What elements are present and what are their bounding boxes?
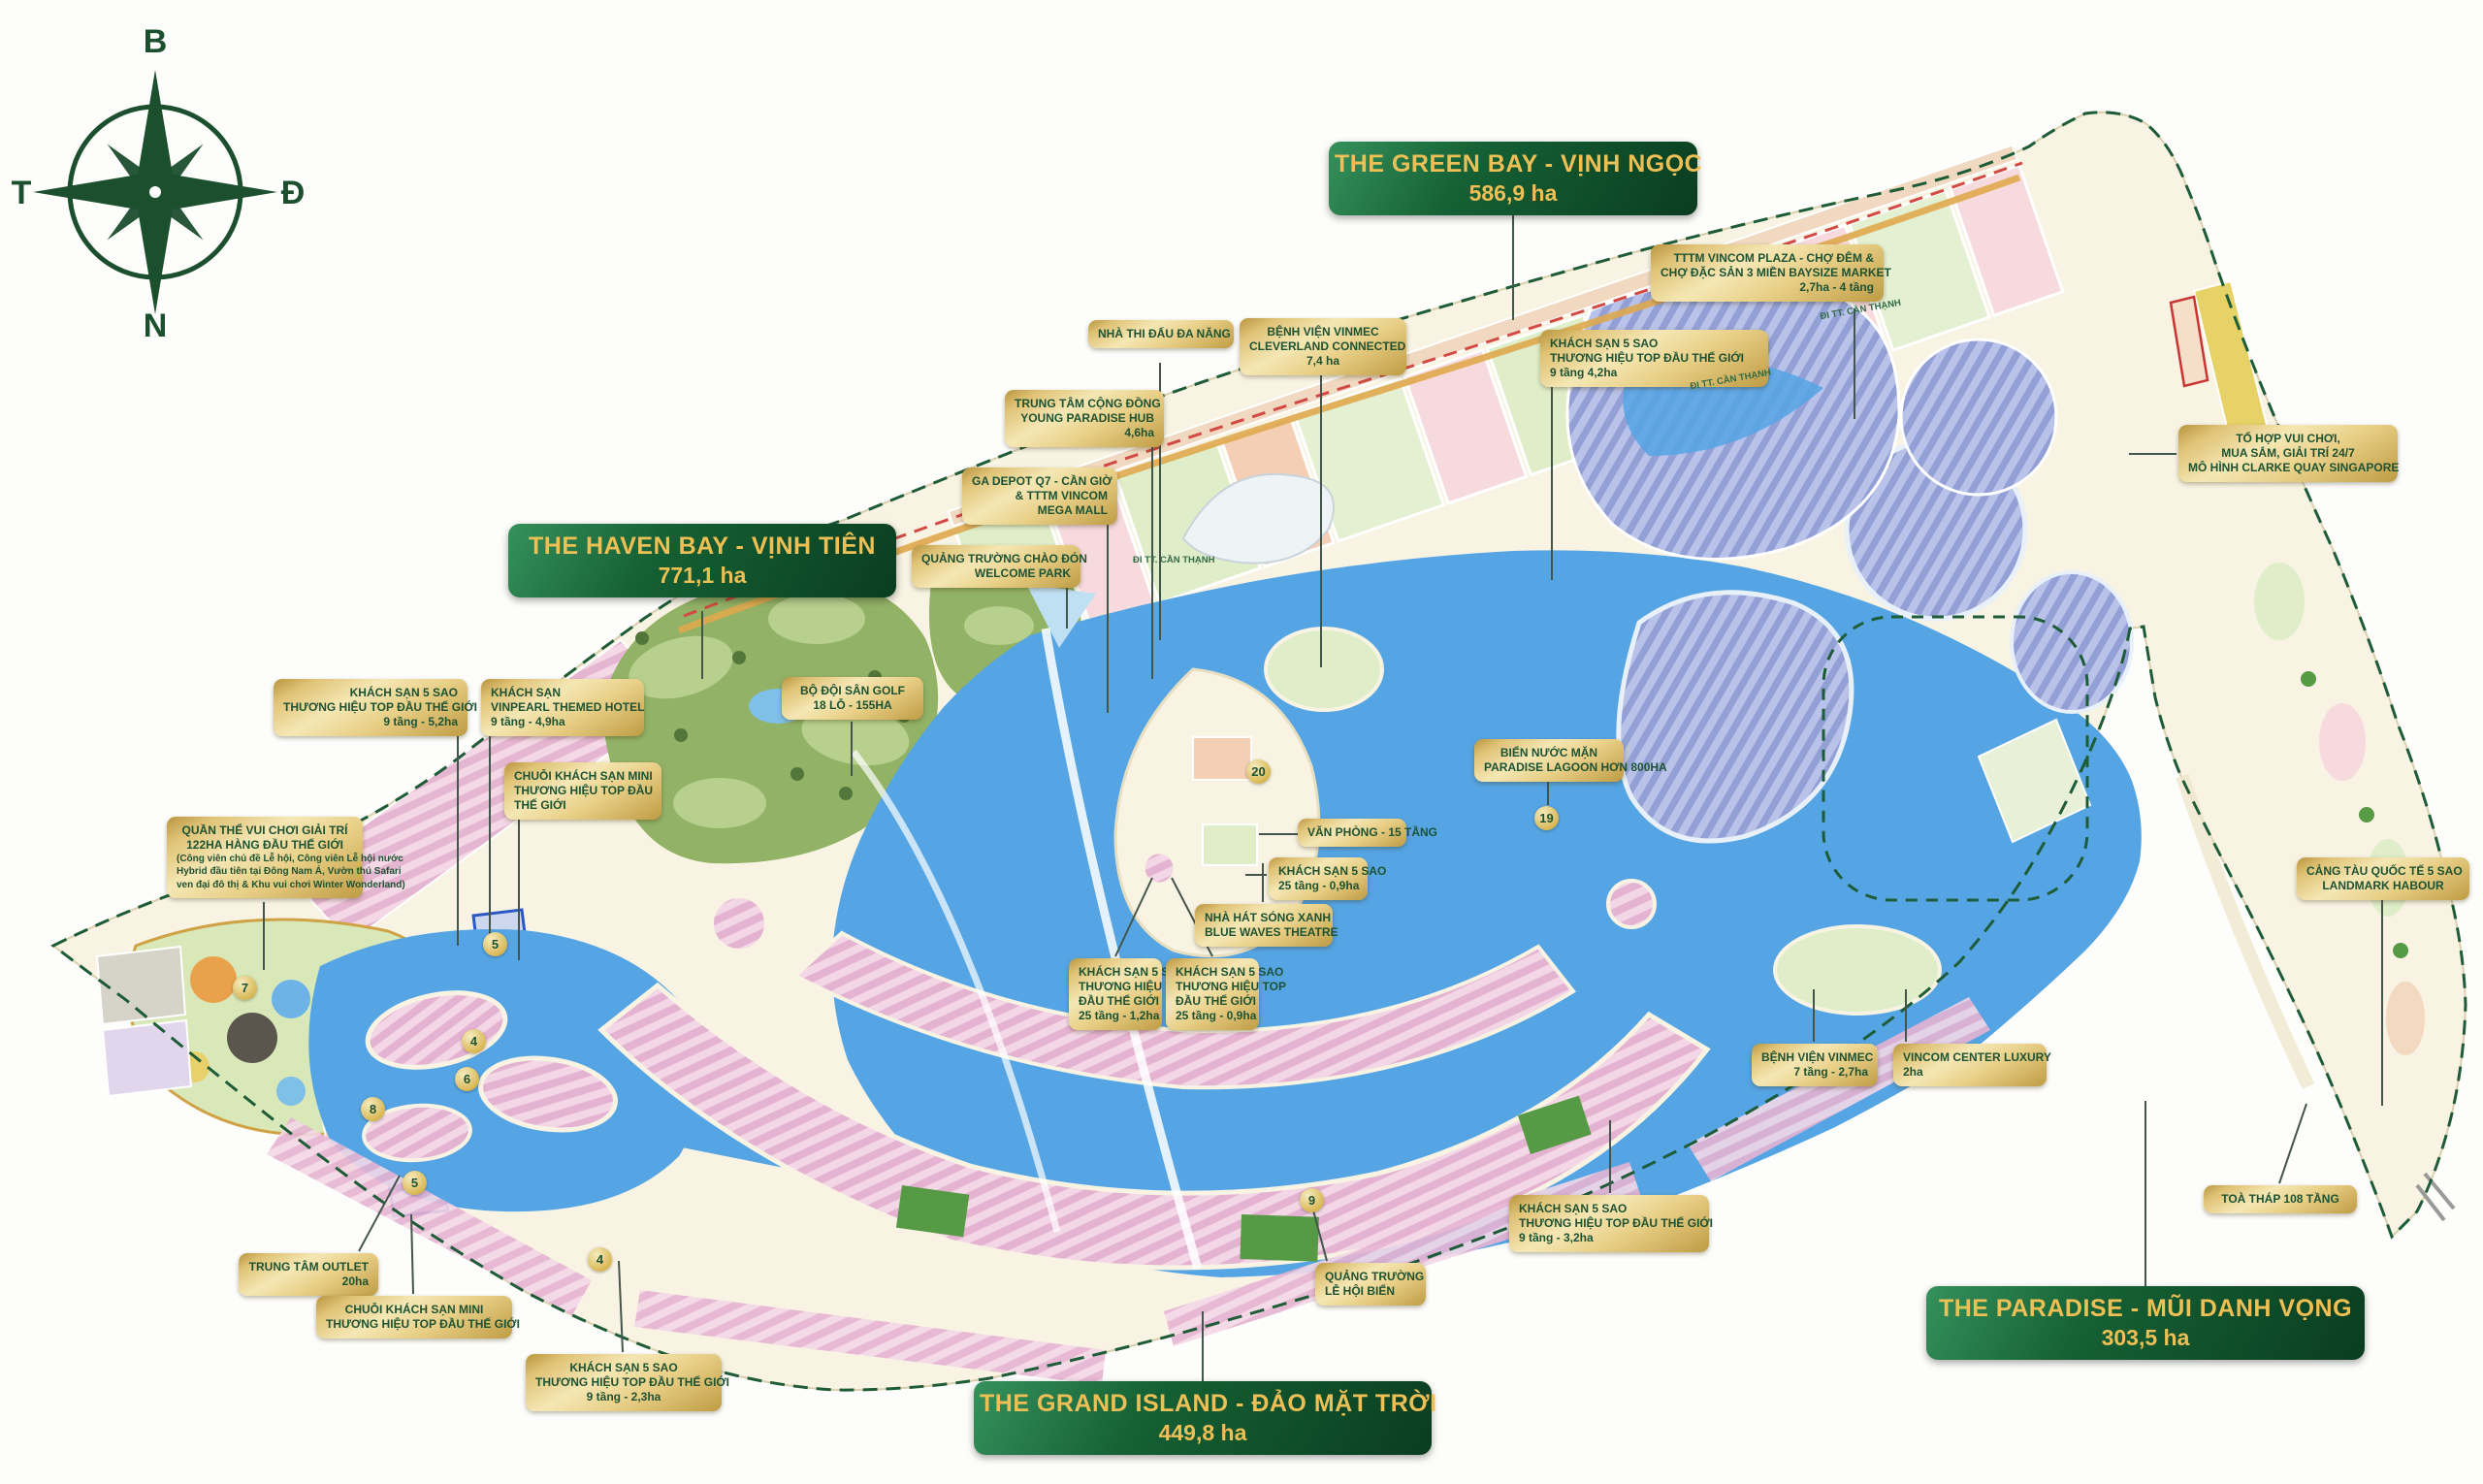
compass-west-label: T (12, 175, 32, 211)
masterplan-map: B Đ T N THE GREEN BAY - VỊNH NGỌC586,9 h… (0, 0, 2483, 1484)
compass-south-label: N (144, 307, 168, 339)
callout-toa-thap-108-leader (2279, 1104, 2306, 1183)
compass-north-label: B (144, 23, 168, 60)
compass-east-label: Đ (281, 175, 306, 211)
map-canvas (0, 0, 2483, 1484)
compass-rose: B Đ T N (8, 10, 308, 339)
